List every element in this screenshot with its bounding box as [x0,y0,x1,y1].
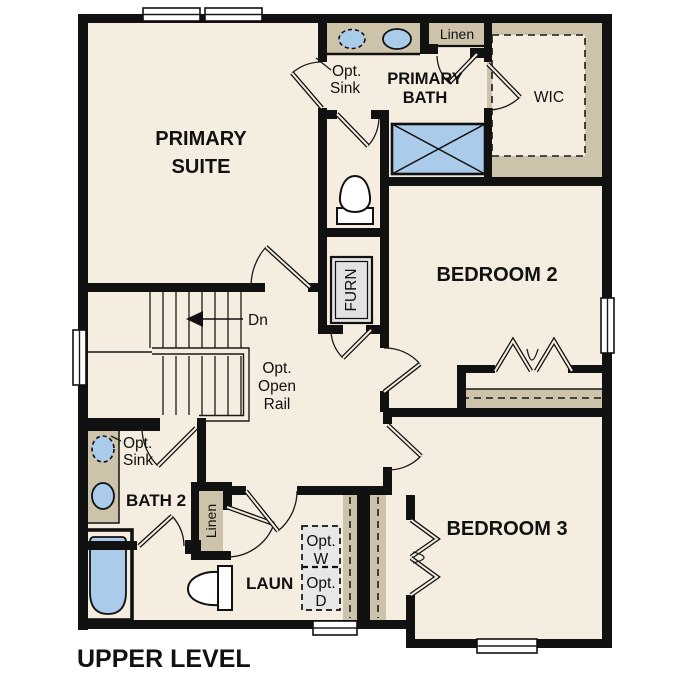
window [313,621,357,635]
label-opt-dryer: Opt. [306,575,335,592]
label-linen-bottom: Linen [203,504,219,538]
room-label-bedroom-2: BEDROOM 2 [436,264,557,286]
room-label-bath-2: BATH 2 [126,491,186,510]
label-stairs-down: Dn [248,312,268,329]
window [477,639,537,653]
plan-title: UPPER LEVEL [77,645,251,673]
label-opt-sink-primary: Opt. [332,63,361,80]
room-label-laundry: LAUN [246,574,293,593]
room-label-primary-suite-line2: SUITE [172,156,231,178]
room-label-primary-suite: PRIMARY [155,128,247,150]
primary-optional-sink-icon [339,30,365,49]
room-label-wic: WIC [534,89,564,106]
room-label-primary-bath-line2: BATH [403,89,448,107]
label-opt-open-rail-line3: Rail [264,396,291,413]
label-opt-sink-primary-line2: Sink [330,80,360,97]
label-opt-washer: Opt. [306,533,335,550]
label-opt-sink-bath2-line2: Sink [123,452,153,469]
label-linen-top: Linen [440,26,474,42]
bath2-optional-sink-icon [92,436,114,462]
window [73,330,86,385]
bath2-sink-icon [92,483,114,509]
bedroom2-closet-shelf [462,389,603,408]
room-label-primary-bath: PRIMARY [387,70,462,88]
label-opt-open-rail-line2: Open [258,378,296,395]
label-opt-open-rail: Opt. [262,360,291,377]
room-label-bedroom-3: BEDROOM 3 [446,518,567,540]
window [205,8,262,21]
floorplan-drawing: PRIMARY SUITE PRIMARY BATH Opt. Sink Lin… [0,0,687,687]
primary-sink-icon [383,29,411,49]
floorplan-page: PRIMARY SUITE PRIMARY BATH Opt. Sink Lin… [0,0,687,687]
window [601,298,614,353]
label-opt-washer-line2: W [314,551,329,568]
label-opt-sink-bath2: Opt. [123,435,152,452]
label-opt-dryer-line2: D [315,593,326,610]
label-furnace: FURN [343,268,360,311]
window [143,8,200,21]
